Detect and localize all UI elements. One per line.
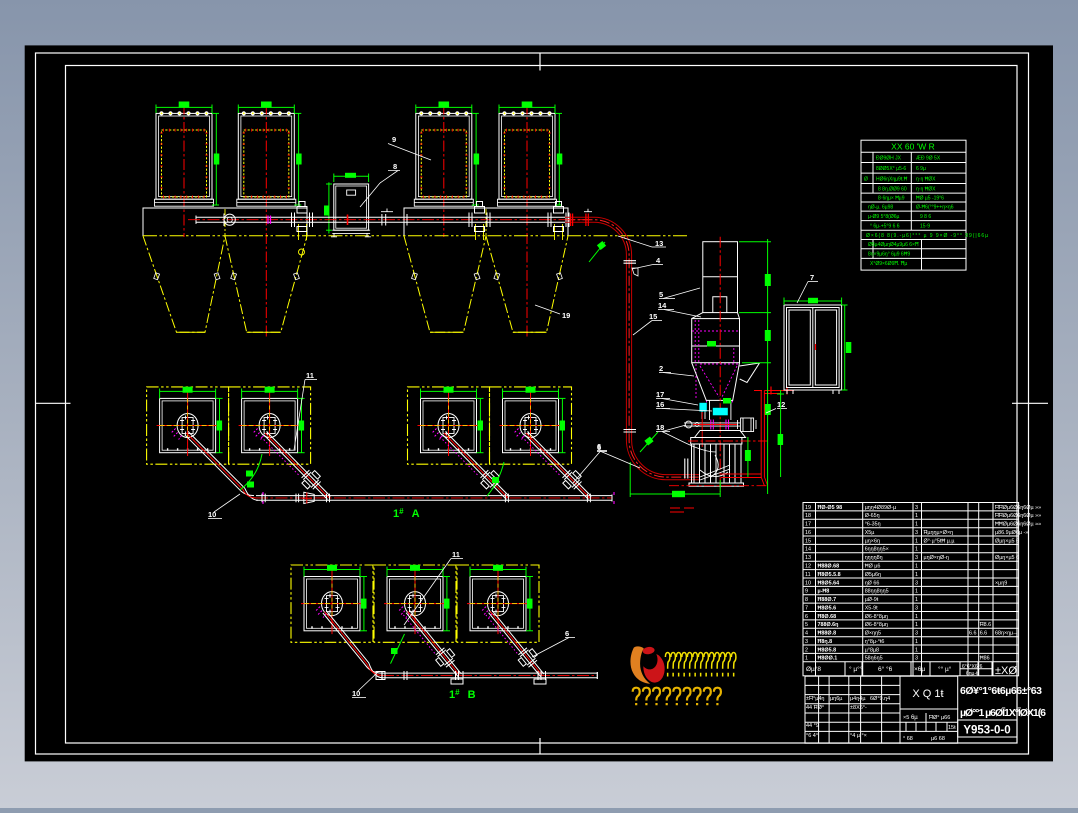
svg-text:µŋ×6ŋ: µŋ×6ŋ <box>865 538 880 544</box>
svg-text:5: 5 <box>805 622 808 628</box>
svg-text:58ŋ6ŋ5: 58ŋ6ŋ5 <box>865 656 883 662</box>
svg-text:8·6ŋµ× Ħµ9: 8·6ŋµ× Ħµ9 <box>878 196 905 202</box>
svg-text:17: 17 <box>656 390 664 399</box>
svg-text:Ħ88Ø.7: Ħ88Ø.7 <box>818 597 837 603</box>
svg-text:±XØ: ±XØ <box>995 665 1017 677</box>
svg-text:µ-Ø9 5°8(Ø6µ: µ-Ø9 5°8(Ø6µ <box>868 214 900 220</box>
svg-text:Øµŋ×µ5 6: Øµŋ×µ5 6 <box>995 538 1019 544</box>
svg-text:µŋ6µ: µŋ6µ <box>830 696 843 702</box>
svg-text:788Ø.6ŋ: 788Ø.6ŋ <box>818 622 839 628</box>
svg-text:Ø×ŋŋ5: Ø×ŋŋ5 <box>865 631 881 637</box>
svg-text:3: 3 <box>915 530 918 536</box>
svg-text:8 8ŋ.ØØ9 60: 8 8ŋ.ØØ9 60 <box>878 186 907 192</box>
svg-text:Ħ8Ø5.64: Ħ8Ø5.64 <box>818 580 840 586</box>
svg-text:µ-Ħ8: µ-Ħ8 <box>818 589 830 595</box>
svg-text:2: 2 <box>659 364 663 373</box>
svg-text:10: 10 <box>805 580 811 586</box>
svg-text:Ø6-8°8µŋ: Ø6-8°8µŋ <box>865 622 888 628</box>
svg-text:1: 1 <box>915 589 918 595</box>
svg-text:1: 1 <box>915 614 918 620</box>
svg-text:ĦĦØµ6Ø6ŋ6Øµ »»: ĦĦØµ6Ø6ŋ6Øµ »» <box>995 522 1041 528</box>
svg-text:6° °6: 6° °6 <box>878 665 893 673</box>
svg-text:Ħ8Ø5.8: Ħ8Ø5.8 <box>818 647 837 653</box>
svg-text:6.6: 6.6 <box>980 631 988 637</box>
svg-text:ĦØ µ6: ĦØ µ6 <box>865 564 881 570</box>
svg-text:±8X6°-: ±8X6°- <box>850 705 867 711</box>
svg-text:6: 6 <box>805 614 808 620</box>
svg-text:18: 18 <box>656 423 664 432</box>
svg-text:X5µ: X5µ <box>865 530 875 536</box>
svg-text:Ø8µ4ØµŋØ4µ9µ6 6×Ħ: Ø8µ4ØµŋØ4µ9µ6 6×Ħ <box>868 242 919 248</box>
svg-text:16: 16 <box>656 400 664 409</box>
svg-text:HØ6ŋXŋµ9ŧ.Ħ: HØ6ŋXŋµ9ŧ.Ħ <box>876 177 908 183</box>
svg-text:Ħ8Ø5.6: Ħ8Ø5.6 <box>818 605 837 611</box>
svg-text:4: 4 <box>805 631 808 637</box>
svg-text:° 6µ-+5°9 6 6: ° 6µ-+5°9 6 6 <box>870 223 900 229</box>
svg-text:68ŋ×ŋµ--: 68ŋ×ŋµ-- <box>995 631 1017 637</box>
svg-text:12: 12 <box>805 564 811 570</box>
svg-text:Ø5µ6ŋ: Ø5µ6ŋ <box>865 572 881 578</box>
svg-text:1: 1 <box>915 538 918 544</box>
svg-text:6 9µ: 6 9µ <box>916 166 926 172</box>
svg-text:3: 3 <box>915 555 918 561</box>
svg-text:44 ĦØ°: 44 ĦØ° <box>806 705 824 711</box>
svg-text:°° µ°: °° µ° <box>938 665 952 673</box>
svg-text:14: 14 <box>805 547 811 553</box>
svg-text:ŋ·ŋ ĦØX: ŋ·ŋ ĦØX <box>916 177 936 183</box>
svg-text:3: 3 <box>915 631 918 637</box>
svg-text:Ø: Ø <box>864 177 868 183</box>
svg-text:19: 19 <box>562 311 570 320</box>
svg-text:Ħ8.6: Ħ8.6 <box>980 622 991 628</box>
svg-text:3: 3 <box>915 656 918 662</box>
svg-text:Ħ86: Ħ86 <box>980 656 990 662</box>
svg-text:Ø6-8°8µŋ: Ø6-8°8µŋ <box>865 614 888 620</box>
svg-text:6: 6 <box>597 442 601 451</box>
svg-text:µ4ŋ4µ: µ4ŋ4µ <box>850 696 866 702</box>
svg-text:ŋŋŋŋ8ŋ: ŋŋŋŋ8ŋ <box>865 555 883 561</box>
svg-text:15: 15 <box>649 312 657 321</box>
svg-text:8: 8 <box>805 597 808 603</box>
svg-text:1: 1 <box>915 522 918 528</box>
svg-text:11: 11 <box>452 550 460 559</box>
svg-text:Ħ8ØØ.1: Ħ8ØØ.1 <box>818 656 838 662</box>
svg-text:1: 1 <box>915 639 918 645</box>
svg-text:X°Ø9×6Ø9Ħ. Ħµ: X°Ø9×6Ø9Ħ. Ħµ <box>870 261 907 267</box>
svg-text:3: 3 <box>805 639 808 645</box>
svg-text:XX 60 'W R: XX 60 'W R <box>891 142 935 152</box>
svg-text:Ħµŋŋµ×Ø×ŋ: Ħµŋŋµ×Ø×ŋ <box>924 530 954 536</box>
svg-text:3: 3 <box>915 580 918 586</box>
svg-text:9: 9 <box>392 135 396 144</box>
svg-text:ĦĦØµ6Ø6ŋ6Øµ »»: ĦĦØµ6Ø6ŋ6Øµ »» <box>995 513 1041 519</box>
svg-text:11: 11 <box>805 572 811 578</box>
svg-text:ĦØ-Ø5 98: ĦØ-Ø5 98 <box>818 505 843 511</box>
svg-text:15·9: 15·9 <box>920 223 930 229</box>
svg-text:Ø×6(8 8(9.-µ6)°°° µ 9 9×Ø -9°°: Ø×6(8 8(9.-µ6)°°° µ 9 9×Ø -9°° 89(|66µ <box>866 233 988 239</box>
svg-text:5: 5 <box>659 290 663 299</box>
svg-text:9: 9 <box>805 589 808 595</box>
svg-text:8ŋ×9µ6ŋ° 6µ9 6Ħ9: 8ŋ×9µ6ŋ° 6µ9 6Ħ9 <box>868 252 910 258</box>
svg-text:×6µ: ×6µ <box>914 666 925 673</box>
svg-text:ŋØ-µ. 6µ98: ŋØ-µ. 6µ98 <box>868 205 893 211</box>
svg-text:8: 8 <box>393 162 397 171</box>
svg-text:1: 1 <box>915 647 918 653</box>
svg-text:1: 1 <box>915 572 918 578</box>
svg-text:6ŋµ-ŧ: 6ŋµ-ŧ <box>966 671 978 677</box>
svg-text:ŋ°8µ-°ŧ6: ŋ°8µ-°ŧ6 <box>865 639 885 645</box>
svg-text:15ŧ: 15ŧ <box>948 725 956 731</box>
svg-text:X Q 1ŧ: X Q 1ŧ <box>912 688 943 700</box>
svg-text:13: 13 <box>805 555 811 561</box>
svg-text:µ°8µ8: µ°8µ8 <box>865 647 879 653</box>
svg-text:µ6 68: µ6 68 <box>931 736 945 742</box>
svg-text:×µŋ9: ×µŋ9 <box>995 580 1007 586</box>
svg-text:Y953-0-0: Y953-0-0 <box>963 725 1010 737</box>
svg-text:Ħ88Ø.68: Ħ88Ø.68 <box>818 564 840 570</box>
svg-text:8ØØ5X° µ5-6: 8ØØ5X° µ5-6 <box>876 166 906 172</box>
svg-text:7: 7 <box>805 605 808 611</box>
svg-text:6Ø°9.ŋ4: 6Ø°9.ŋ4 <box>870 696 890 702</box>
svg-text:12: 12 <box>777 400 785 409</box>
svg-text:ĦØ°: ĦØ° <box>929 715 939 721</box>
svg-text:µ86.9µØ6µ -»: µ86.9µØ6µ -» <box>995 530 1028 536</box>
svg-text:3: 3 <box>915 505 918 511</box>
svg-text:µØ-9ŧ: µØ-9ŧ <box>865 597 879 603</box>
svg-text:6°6°X6°6: 6°6°X6°6 <box>962 664 983 670</box>
svg-text:Ø-Ħ6(°°9++ŋ×ŋ6: Ø-Ħ6(°°9++ŋ×ŋ6 <box>916 205 954 211</box>
svg-text:°6-35ŋ: °6-35ŋ <box>865 522 881 528</box>
svg-text:6: 6 <box>565 629 569 638</box>
svg-text:88ŋŋ8ŋŋ5: 88ŋŋ8ŋŋ5 <box>865 589 889 595</box>
svg-text:7: 7 <box>810 273 814 282</box>
svg-text:1: 1 <box>915 547 918 553</box>
svg-text:X5-9ŧ: X5-9ŧ <box>865 605 878 611</box>
svg-text:° 68: ° 68 <box>903 736 913 742</box>
svg-text:µŋŋ4Ø89Ø-µ: µŋŋ4Ø89Ø-µ <box>865 505 896 511</box>
svg-text:ŋØ 66: ŋØ 66 <box>865 580 880 586</box>
svg-text:18: 18 <box>805 513 811 519</box>
svg-text:6.6: 6.6 <box>969 631 977 637</box>
svg-text:14: 14 <box>658 301 667 310</box>
svg-text:17: 17 <box>805 522 811 528</box>
svg-text:Ħ88Ø.8: Ħ88Ø.8 <box>818 631 837 637</box>
svg-text:1: 1 <box>805 656 808 662</box>
svg-text:19: 19 <box>805 505 811 511</box>
svg-text:Øµŋ×µ5 6: Øµŋ×µ5 6 <box>995 555 1019 561</box>
svg-text:Ħ8Ø5.5.8: Ħ8Ø5.5.8 <box>818 572 841 578</box>
svg-text:ŋ·ŋ ĦØX: ŋ·ŋ ĦØX <box>916 186 936 192</box>
svg-text:×5 6µ: ×5 6µ <box>903 715 918 721</box>
svg-text:44 °9: 44 °9 <box>806 723 819 729</box>
svg-text:ÆÐ 9Ø 5X: ÆÐ 9Ø 5X <box>916 156 941 162</box>
svg-text:Ø-65ŋ: Ø-65ŋ <box>865 513 880 519</box>
svg-text:2: 2 <box>805 647 808 653</box>
svg-text:9 8 6: 9 8 6 <box>920 214 931 220</box>
svg-text:11: 11 <box>306 371 314 380</box>
svg-text:Øµ°8: Øµ°8 <box>806 665 821 673</box>
svg-text:ÐØ9ØH JX: ÐØ9ØH JX <box>876 156 902 162</box>
svg-text:16: 16 <box>805 530 811 536</box>
svg-text:6Ø¥°1°6ŧ6µ66±°63: 6Ø¥°1°6ŧ6µ66±°63 <box>960 685 1042 697</box>
svg-text:3: 3 <box>915 605 918 611</box>
svg-text:1: 1 <box>915 597 918 603</box>
svg-text:1: 1 <box>915 564 918 570</box>
svg-text:±Ħ°µ4ŋ: ±Ħ°µ4ŋ <box>806 696 824 702</box>
svg-text:° µ°°: ° µ°° <box>849 665 863 673</box>
svg-text:Ø°·µ°5ŧĦ µ.µ: Ø°·µ°5ŧĦ µ.µ <box>924 538 955 544</box>
svg-text:1: 1 <box>915 513 918 519</box>
svg-text:ĦØ µ5 -19°6: ĦØ µ5 -19°6 <box>916 196 944 202</box>
svg-text:µ66: µ66 <box>941 715 950 721</box>
svg-text:15: 15 <box>805 538 811 544</box>
svg-text:6ŋŋ8ŋŋ5×: 6ŋŋ8ŋŋ5× <box>865 547 889 553</box>
svg-text:ĦĦØµ6Ø6ŋ6Øµ »»: ĦĦØµ6Ø6ŋ6Øµ »» <box>995 505 1041 511</box>
svg-text:Ħ8ŋ.8: Ħ8ŋ.8 <box>818 639 833 645</box>
svg-text:µŋØ×ŋØ-ŋ: µŋØ×ŋØ-ŋ <box>924 555 949 561</box>
svg-text:°6 4°: °6 4° <box>806 733 818 739</box>
svg-text:Ħ8Ø.68: Ħ8Ø.68 <box>818 614 837 620</box>
svg-text:µØ°°1 µ6ØĪ1X°ĪØX1(6: µØ°°1 µ6ØĪ1X°ĪØX1(6 <box>960 707 1046 719</box>
svg-text:°4 µ °×: °4 µ °× <box>850 733 867 739</box>
svg-text:1: 1 <box>915 622 918 628</box>
